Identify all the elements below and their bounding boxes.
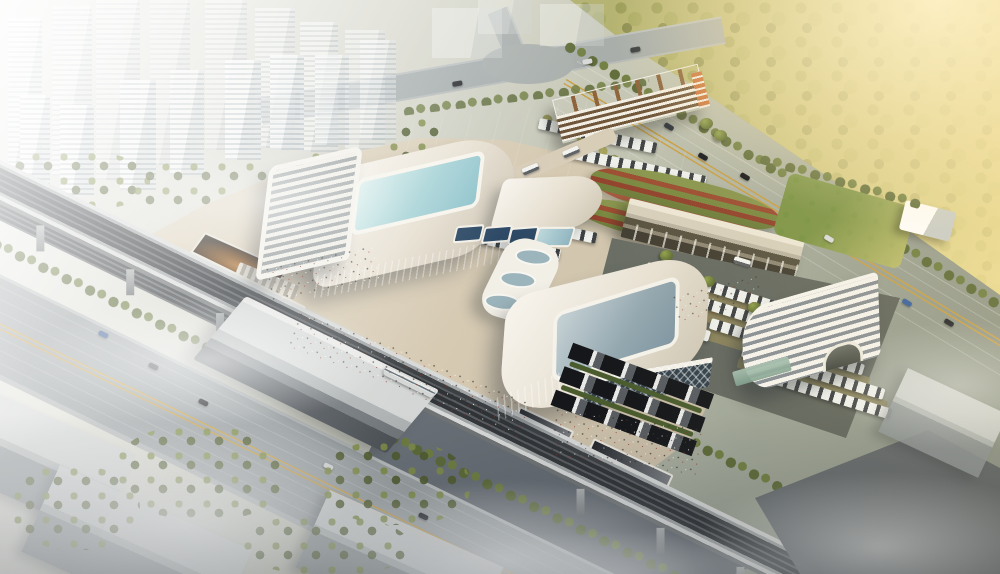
tree [714,130,727,141]
viaduct-pier [36,225,44,251]
distant-block [478,0,532,34]
viaduct-pier [126,269,134,295]
tree [700,118,713,129]
mist-patch [30,295,390,425]
tower [315,55,349,145]
mist-patch [110,140,410,260]
tower [360,40,396,140]
aerial-render-scene [0,0,1000,574]
oval-skylight [512,246,554,267]
tower [270,55,304,150]
